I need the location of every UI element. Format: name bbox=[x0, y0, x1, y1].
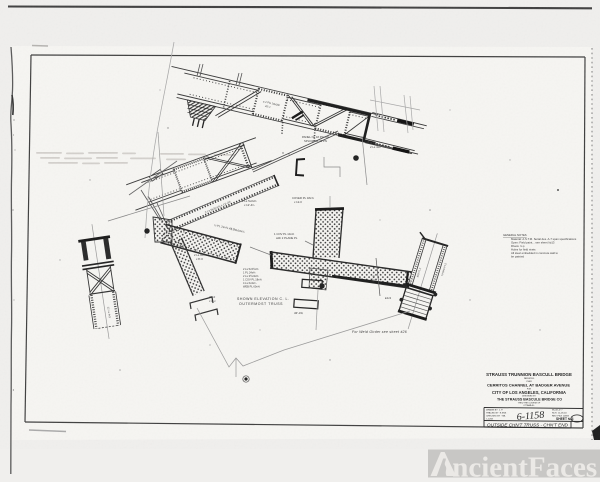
svg-text:ncientFaces: ncientFaces bbox=[452, 452, 597, 482]
